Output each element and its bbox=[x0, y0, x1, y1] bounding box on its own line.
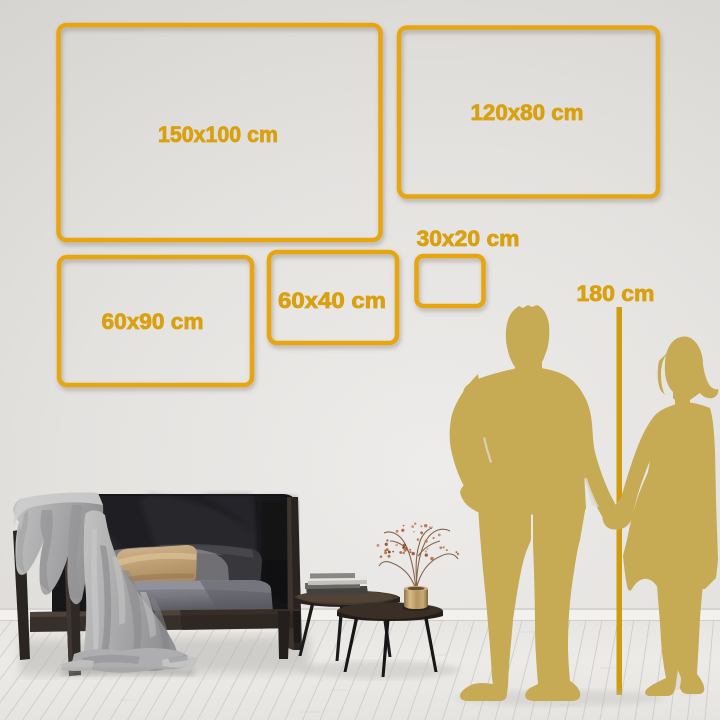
svg-text:30x20 cm: 30x20 cm bbox=[417, 226, 520, 251]
svg-text:120x80 cm: 120x80 cm bbox=[471, 100, 584, 125]
svg-text:150x100 cm: 150x100 cm bbox=[158, 122, 278, 147]
svg-text:60x90 cm: 60x90 cm bbox=[102, 309, 204, 334]
svg-text:60x40 cm: 60x40 cm bbox=[278, 288, 386, 313]
svg-text:180 cm: 180 cm bbox=[577, 281, 655, 306]
